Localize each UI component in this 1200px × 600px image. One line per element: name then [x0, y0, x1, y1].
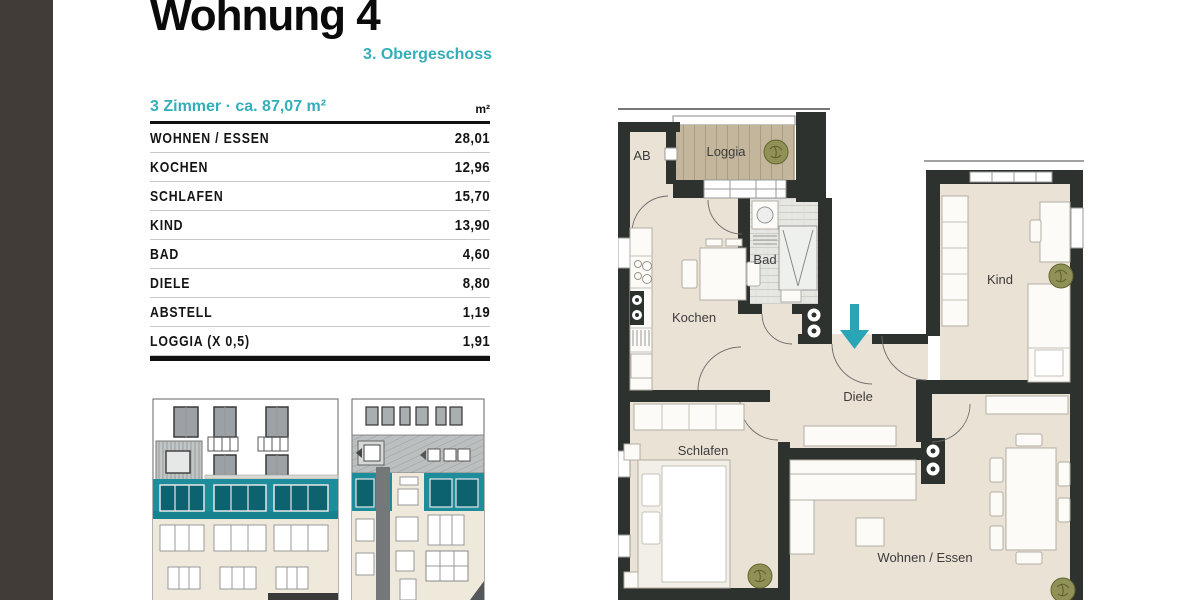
row-label: KIND [150, 217, 183, 234]
room-label-kind: Kind [987, 272, 1013, 287]
plant-schlafen [748, 564, 772, 588]
row-label: BAD [150, 246, 179, 263]
row-label: WOHNEN / ESSEN [150, 130, 269, 147]
table-row: SCHLAFEN 15,70 [150, 182, 490, 211]
row-value: 1,19 [463, 304, 490, 321]
room-label-wohnen: Wohnen / Essen [877, 550, 972, 565]
table-row: LOGGIA (X 0,5) 1,91 [150, 327, 490, 356]
row-value: 13,90 [455, 217, 490, 234]
page: Wohnung 4 3. Obergeschoss 3 Zimmer · ca.… [0, 0, 1200, 600]
table-header-unit: m² [475, 102, 490, 116]
table-bottom-rule [150, 356, 490, 361]
row-label: SCHLAFEN [150, 188, 224, 205]
row-label: LOGGIA (X 0,5) [150, 333, 250, 350]
row-value: 28,01 [455, 130, 490, 147]
page-title: Wohnung 4 [150, 0, 380, 38]
elevation-drawing-side [350, 395, 490, 600]
floor-plan: AB Loggia Bad Kochen Kind Diele Schlafen… [618, 108, 1098, 600]
row-value: 4,60 [463, 246, 490, 263]
room-label-schlafen: Schlafen [678, 443, 729, 458]
room-area-table: 3 Zimmer · ca. 87,07 m² m² WOHNEN / ESSE… [150, 92, 490, 361]
row-value: 12,96 [455, 159, 490, 176]
room-label-diele: Diele [843, 389, 873, 404]
elevation-drawing-front [150, 393, 345, 600]
plant-kind [1049, 264, 1073, 288]
table-row: WOHNEN / ESSEN 28,01 [150, 124, 490, 153]
table-row: ABSTELL 1,19 [150, 298, 490, 327]
plant-loggia [764, 140, 788, 164]
loggia-railing [673, 116, 795, 125]
floor-subtitle: 3. Obergeschoss [150, 46, 492, 64]
table-header: 3 Zimmer · ca. 87,07 m² m² [150, 92, 490, 116]
row-label: DIELE [150, 275, 190, 292]
hall-sideboard [804, 426, 896, 446]
roof-line [618, 108, 830, 110]
room-label-loggia: Loggia [706, 144, 746, 159]
row-value: 8,80 [463, 275, 490, 292]
row-label: KOCHEN [150, 159, 208, 176]
balcony-line [924, 160, 1084, 162]
row-value: 15,70 [455, 188, 490, 205]
table-row: BAD 4,60 [150, 240, 490, 269]
table-row: KIND 13,90 [150, 211, 490, 240]
table-header-summary: 3 Zimmer · ca. 87,07 m² [150, 98, 326, 116]
room-label-ab: AB [633, 148, 650, 163]
table-row: DIELE 8,80 [150, 269, 490, 298]
table-row: KOCHEN 12,96 [150, 153, 490, 182]
room-label-bad: Bad [753, 252, 776, 267]
row-value: 1,91 [463, 333, 490, 350]
row-label: ABSTELL [150, 304, 212, 321]
plant-wohnen [1051, 578, 1075, 600]
left-accent-bar [0, 0, 53, 600]
room-label-kochen: Kochen [672, 310, 716, 325]
